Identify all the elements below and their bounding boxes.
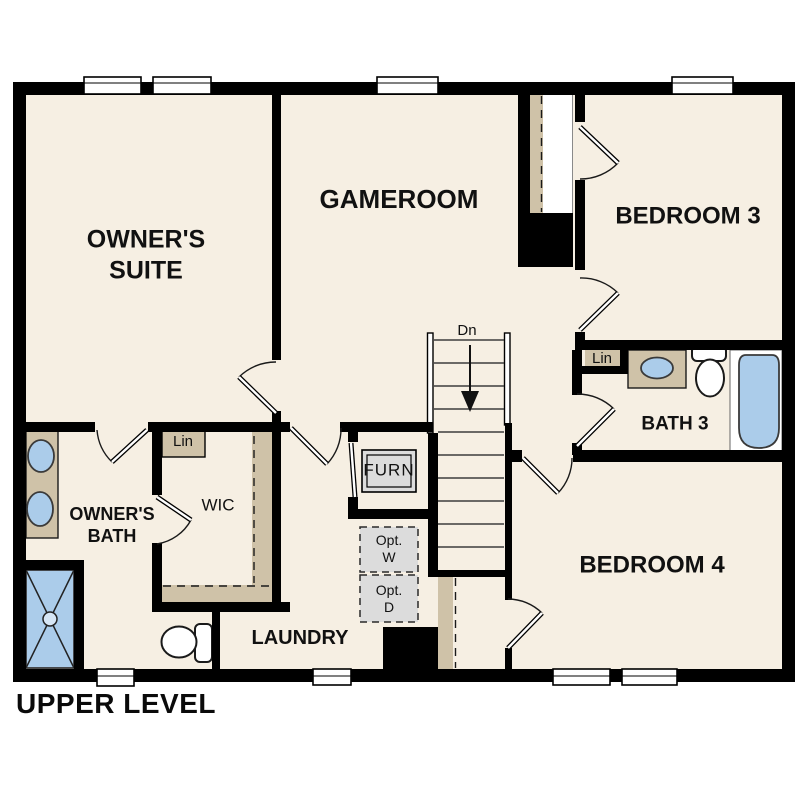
stairs-direction-label: Dn <box>457 322 476 340</box>
wall-segment <box>13 422 95 432</box>
room-label-line: BATH <box>69 526 154 548</box>
window <box>622 669 677 685</box>
wall-segment <box>272 95 281 360</box>
wall-segment <box>340 422 433 432</box>
stair-rail <box>428 333 434 433</box>
bedroom4-closet-shelf <box>438 577 453 670</box>
bathtub <box>739 355 779 448</box>
wall-segment <box>152 543 162 602</box>
room-label-line: OWNER'S <box>87 225 205 256</box>
wall-segment <box>505 648 512 670</box>
wall-segment <box>74 570 84 669</box>
window <box>313 669 351 685</box>
window <box>377 77 438 94</box>
stair-open-below <box>543 95 573 213</box>
room-label-line: OWNER'S <box>69 504 154 526</box>
window <box>84 77 141 94</box>
window <box>553 669 610 685</box>
optional-dryer-label: Opt. D <box>376 582 402 616</box>
room-label-laundry: LAUNDRY <box>251 626 348 650</box>
wall-segment <box>782 82 795 682</box>
room-label-line: SUITE <box>87 255 205 286</box>
wall-segment <box>152 432 162 495</box>
wall-segment <box>573 450 782 462</box>
wall-segment <box>13 82 26 682</box>
optional-washer-label: Opt. W <box>376 532 402 566</box>
wall-segment <box>212 607 220 669</box>
wall-segment <box>148 422 290 432</box>
shower <box>26 570 74 668</box>
closet-label-linen: Lin <box>173 433 193 451</box>
window <box>97 669 134 686</box>
wall-segment <box>428 570 512 577</box>
wall-segment <box>505 577 512 600</box>
equipment-label-line: W <box>376 549 402 566</box>
wall-segment <box>348 509 433 519</box>
window <box>153 77 211 94</box>
window <box>672 77 733 94</box>
room-label-owners-bath: OWNER'S BATH <box>69 504 154 548</box>
equipment-label-line: Opt. <box>376 532 402 549</box>
wall-segment <box>505 450 522 462</box>
sink <box>28 440 54 472</box>
room-label-wic: WIC <box>201 496 234 517</box>
equipment-label-line: Opt. <box>376 582 402 599</box>
wall-segment <box>152 602 290 612</box>
wall-segment <box>575 95 585 122</box>
room-label-owners-suite: OWNER'S SUITE <box>87 225 205 286</box>
wall-segment <box>505 423 512 577</box>
chase-block <box>383 627 438 670</box>
wall-segment <box>428 433 438 577</box>
wic-shelf-bottom <box>162 585 272 602</box>
level-title: UPPER LEVEL <box>16 688 216 720</box>
floor-plan: OWNER'S SUITE GAMEROOM BEDROOM 3 BATH 3 … <box>0 0 810 810</box>
room-label-gameroom: GAMEROOM <box>320 184 479 216</box>
sink <box>27 492 53 526</box>
wall-segment <box>348 432 358 442</box>
wall-segment <box>575 180 585 270</box>
wic-shelf-right <box>252 432 272 585</box>
wall-segment <box>575 340 782 350</box>
room-label-bedroom3: BEDROOM 3 <box>615 201 760 230</box>
stair-rail <box>505 333 511 425</box>
room-label-bedroom4: BEDROOM 4 <box>579 550 724 579</box>
room-label-bath3: BATH 3 <box>641 412 708 435</box>
wall-segment <box>518 95 530 213</box>
shower-drain <box>43 612 57 626</box>
stairwell-void <box>543 95 573 213</box>
wall-segment <box>272 411 281 602</box>
furnace-label: FURN <box>363 461 414 482</box>
sink <box>641 358 673 379</box>
stair-landing-block <box>518 213 573 267</box>
wall-segment <box>13 560 84 570</box>
closet-label-linen: Lin <box>592 350 612 368</box>
equipment-label-line: D <box>376 599 402 616</box>
